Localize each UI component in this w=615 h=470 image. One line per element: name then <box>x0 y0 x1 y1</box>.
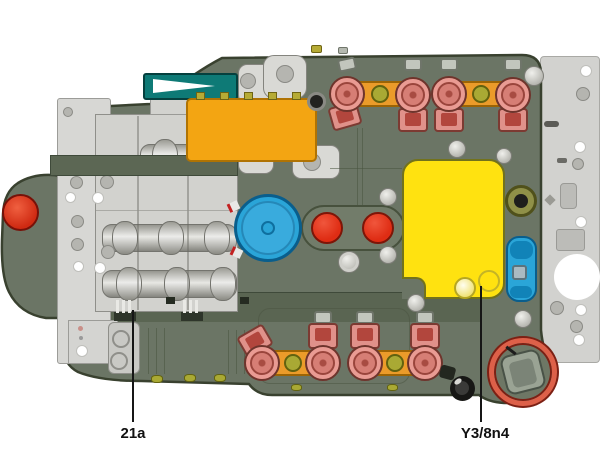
red-knob <box>2 194 39 231</box>
solenoid-cap-ring <box>250 351 274 375</box>
contact-comb-base <box>181 312 203 321</box>
body-ridge <box>148 328 149 374</box>
solenoid-mount-tab <box>504 58 522 71</box>
body-ridge <box>228 330 229 374</box>
solenoid-cap-ring <box>335 82 359 106</box>
body-foot <box>184 374 196 382</box>
solenoid-cap-ring <box>401 83 425 107</box>
solenoid-window <box>405 113 421 126</box>
callout-label-21a: 21a <box>103 425 163 442</box>
solenoid-cap <box>347 345 383 381</box>
left-plate-rivet <box>63 107 73 117</box>
plate-hole <box>92 192 104 204</box>
body-foot <box>387 384 398 391</box>
boss-ring <box>112 330 130 348</box>
plate-rivet <box>101 245 115 259</box>
left-plate-rivet <box>70 176 83 189</box>
bolt <box>379 188 397 206</box>
solenoid-window <box>505 113 521 126</box>
connector-contact <box>220 92 229 100</box>
solenoid-cap-ring <box>353 351 377 375</box>
blue-module-band <box>510 241 533 259</box>
solenoid-cap <box>244 345 280 381</box>
link-bar-grommet <box>371 85 389 103</box>
solenoid-cap-ring <box>501 83 525 107</box>
body-ridge <box>156 328 157 374</box>
blue-sensor-hub <box>261 221 275 235</box>
plate-hole <box>94 262 106 274</box>
solenoid-window <box>357 328 373 341</box>
panel-dot <box>78 326 83 331</box>
body-foot <box>291 384 302 391</box>
spool-valve-land <box>204 221 230 255</box>
solenoid-cap <box>305 345 341 381</box>
bolt <box>448 140 466 158</box>
connector-block <box>186 98 317 162</box>
contact-socket <box>166 297 175 304</box>
link-bar-grommet <box>386 354 404 372</box>
dark-button <box>307 92 326 111</box>
bolt <box>379 246 397 264</box>
bolt <box>407 294 425 312</box>
red-valve <box>311 212 343 244</box>
panel-dot <box>79 336 83 340</box>
plate-seam <box>137 116 139 310</box>
solenoid-cap-ring <box>311 351 335 375</box>
body-contact <box>311 45 322 53</box>
solenoid-mount-tab <box>404 58 422 71</box>
plate-rivet <box>100 175 114 189</box>
contact-pin <box>116 300 119 313</box>
body-groove <box>362 128 363 206</box>
contact-pin <box>195 300 198 313</box>
connector-contact <box>268 92 277 100</box>
solenoid-window <box>441 113 457 126</box>
retainer-bolt <box>240 73 256 89</box>
body-nub <box>338 47 348 54</box>
illustration-canvas: 21a Y3/8n4 <box>0 0 615 470</box>
solenoid-cap-ring <box>437 82 461 106</box>
callout-label-y3-8n4: Y3/8n4 <box>449 425 521 442</box>
callout-line-21a <box>132 310 134 422</box>
connector-contact <box>196 92 205 100</box>
solenoid-window <box>417 328 433 341</box>
solenoid-cap-ring <box>413 351 437 375</box>
blue-module-foot <box>510 286 532 298</box>
spool-valve-land <box>112 221 138 255</box>
panel-hole <box>76 345 88 357</box>
left-plate-rivet <box>71 215 84 228</box>
callout-line-y3-8n4 <box>480 286 482 422</box>
link-bar-grommet <box>472 85 490 103</box>
retainer-bolt <box>276 65 294 83</box>
contact-pin <box>183 300 186 313</box>
spool-valve-land <box>210 267 236 301</box>
contact-pin <box>128 300 131 313</box>
spool-valve-land <box>158 221 184 255</box>
solenoid-window <box>315 328 331 341</box>
body-foot <box>151 375 163 383</box>
body-groove <box>357 128 358 206</box>
plate-seam <box>96 210 237 211</box>
selector-lever-cutout <box>153 79 215 93</box>
connector-contact <box>244 92 253 100</box>
olive-ring-center <box>514 194 528 208</box>
boss-ring <box>110 352 128 370</box>
washer-bolt <box>338 251 360 273</box>
left-plate-hole <box>65 192 76 203</box>
left-plate-rivet <box>71 238 84 251</box>
solenoid-mount-tab <box>440 58 458 71</box>
contact-pin <box>189 300 192 313</box>
solenoid-cap <box>395 77 431 113</box>
bolt <box>496 148 512 164</box>
body-foot <box>214 374 226 382</box>
contact-socket <box>240 297 249 304</box>
body-groove <box>330 168 402 169</box>
body-ridge <box>164 328 165 374</box>
solenoid-cap <box>329 76 365 112</box>
contact-pin <box>122 300 125 313</box>
solenoid-cap <box>407 345 443 381</box>
control-unit-bolt <box>454 277 476 299</box>
bolt <box>524 66 544 86</box>
red-valve <box>362 212 394 244</box>
left-plate-hole <box>73 261 84 272</box>
link-bar-grommet <box>284 354 302 372</box>
blue-module-window <box>512 265 527 280</box>
bolt <box>514 310 532 328</box>
connector-contact <box>292 92 301 100</box>
solenoid-cap <box>431 76 467 112</box>
